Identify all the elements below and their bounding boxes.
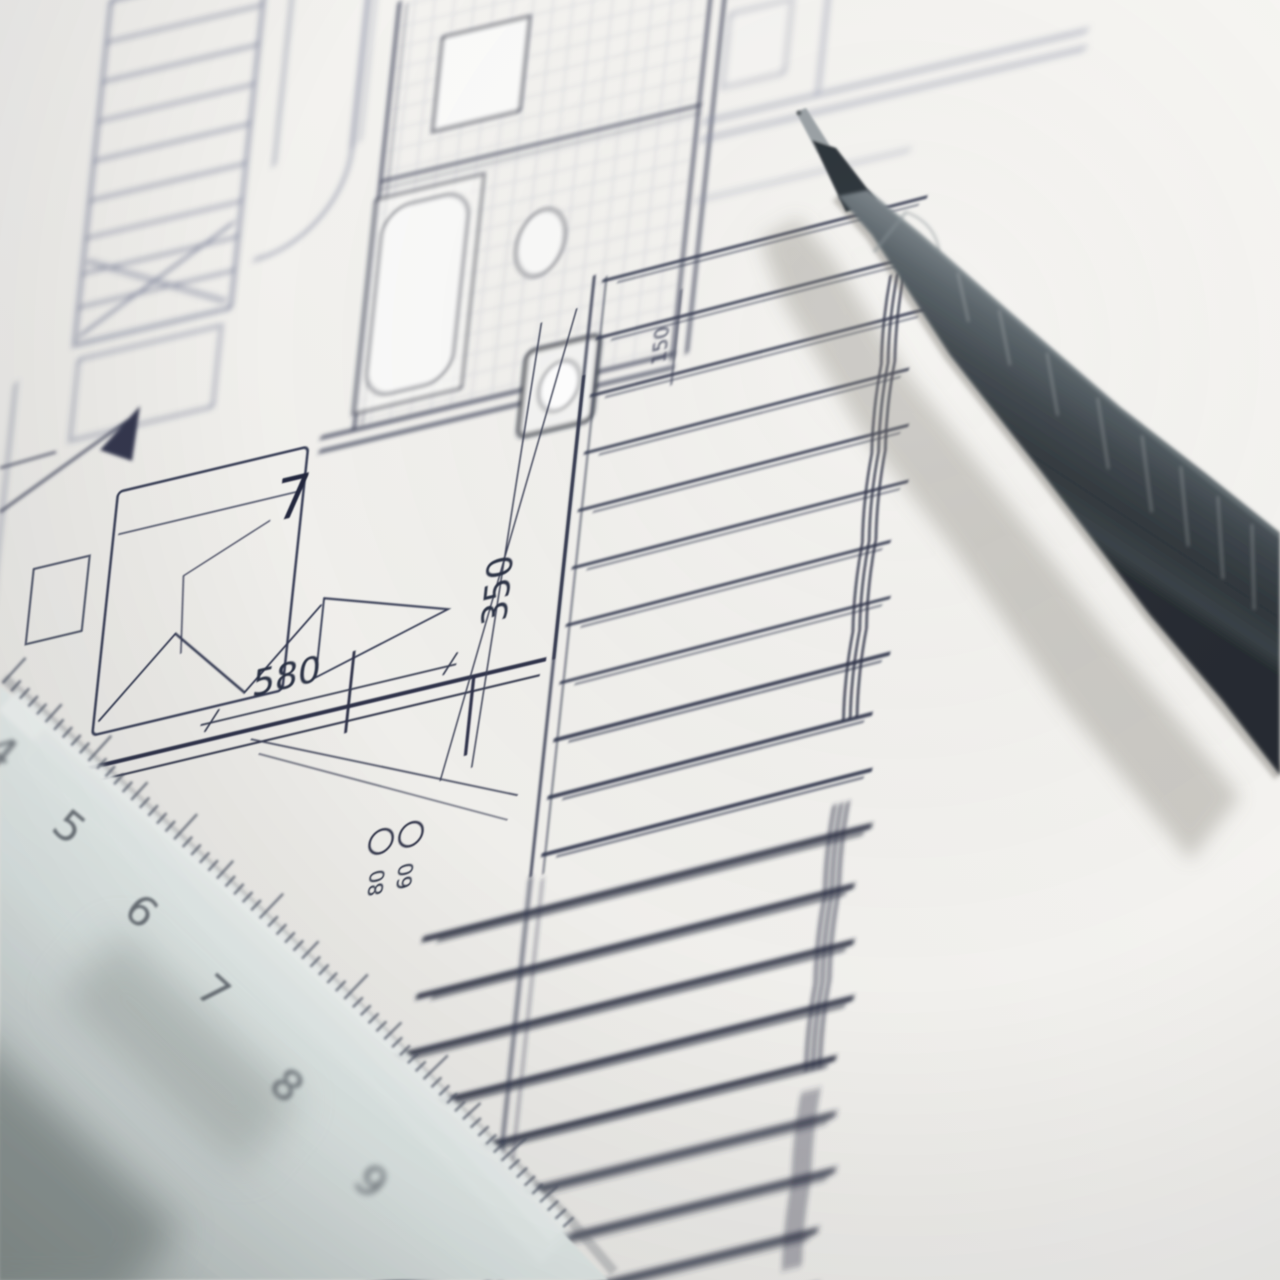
vignette-overlay [0, 0, 1280, 1280]
scene: 7 580 350 80 60 150 [0, 0, 1280, 1280]
photo-of-floor-plan: 7 580 350 80 60 150 [0, 0, 1280, 1280]
